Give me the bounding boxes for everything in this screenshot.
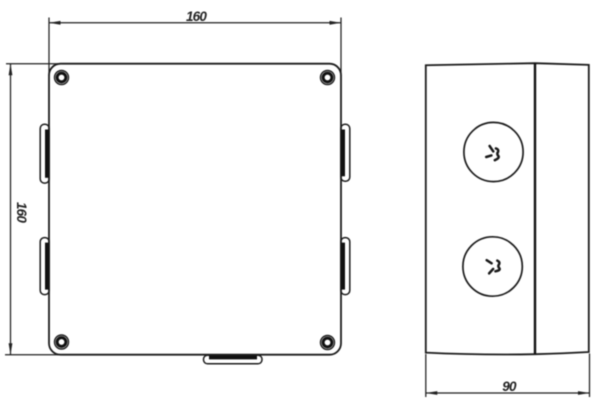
svg-text:90: 90 (502, 379, 517, 394)
svg-text:160: 160 (14, 202, 29, 223)
svg-text:160: 160 (186, 9, 207, 24)
